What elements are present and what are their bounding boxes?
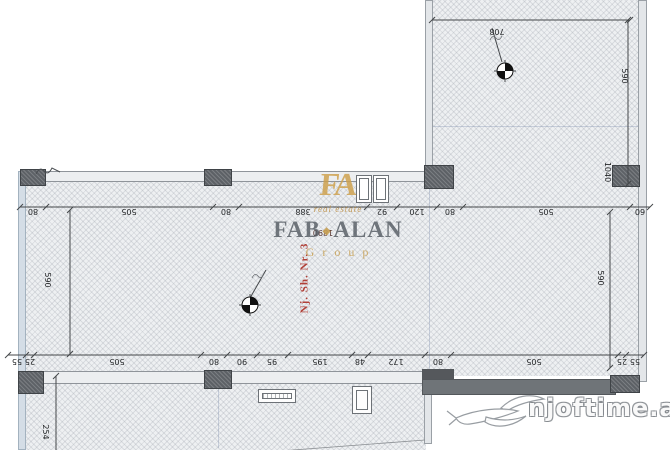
column [204, 169, 232, 186]
dimension-label: 80 [436, 206, 464, 216]
dimension-label: 708 [483, 26, 511, 36]
column [424, 165, 454, 189]
column [610, 375, 640, 393]
dimension-label: 80 [200, 356, 228, 366]
diagonal-line [280, 438, 426, 450]
dimension-label: 254 [40, 418, 50, 446]
brand-monogram: FA [318, 166, 356, 203]
brand-name-part: FAB [273, 217, 320, 242]
window-icon [373, 175, 389, 203]
dimension-label: 80 [212, 206, 240, 216]
bottom-room-height-dimension-line [50, 372, 62, 450]
dimension-label: 505 [532, 206, 560, 216]
diamond-icon: ◆ [321, 226, 334, 237]
dimension-label: 48 [346, 356, 374, 366]
dimension-label: 25 [16, 356, 44, 366]
corner-annotation [34, 164, 62, 178]
dimension-label: 590 [619, 62, 629, 90]
survey-marker-icon [494, 60, 516, 82]
site-watermark: njoftime.al [528, 394, 670, 422]
top-room-left-wall [425, 0, 433, 186]
dimension-label: 80 [19, 206, 47, 216]
floorplan-image: 708 590 1040 590 590 254 1890 80 505 80 … [0, 0, 670, 450]
dimension-label: 120 [403, 206, 431, 216]
shaft-fixture-icon [352, 386, 372, 414]
dimension-label: 590 [42, 266, 52, 294]
vent-fixture-icon [258, 389, 296, 403]
dimension-label: 172 [382, 356, 410, 366]
brand-name: FAB◆ALAN [262, 217, 414, 243]
gridline [218, 384, 219, 448]
brand-name-part: ALAN [333, 217, 402, 242]
dimension-label: 90 [228, 356, 256, 366]
column [204, 370, 232, 389]
dimension-label: 60 [626, 206, 654, 216]
dimension-label: 1040 [602, 158, 612, 186]
dimension-label: 505 [520, 356, 548, 366]
dimension-label: 92 [368, 206, 396, 216]
dimension-label: 55 [621, 356, 649, 366]
right-height-dimension-line [604, 208, 616, 372]
dimension-label: 80 [424, 356, 452, 366]
dimension-label: 505 [103, 356, 131, 366]
column [18, 371, 44, 394]
top-room-height-dimension-line [622, 16, 634, 188]
dimension-label: 505 [115, 206, 143, 216]
left-height-dimension-line [64, 206, 76, 358]
bottom-room-right-wall [424, 392, 432, 444]
right-wall [638, 0, 647, 382]
dimension-label: 195 [306, 356, 334, 366]
top-room-floor [429, 0, 641, 184]
brand-tagline: real estate [306, 204, 370, 214]
dimension-label: 95 [258, 356, 286, 366]
dimension-label: 590 [595, 264, 605, 292]
top-room-width-dimension-line [428, 14, 634, 26]
brand-group-label: Group [286, 245, 396, 260]
gridline [430, 126, 638, 127]
window-icon [356, 175, 372, 203]
